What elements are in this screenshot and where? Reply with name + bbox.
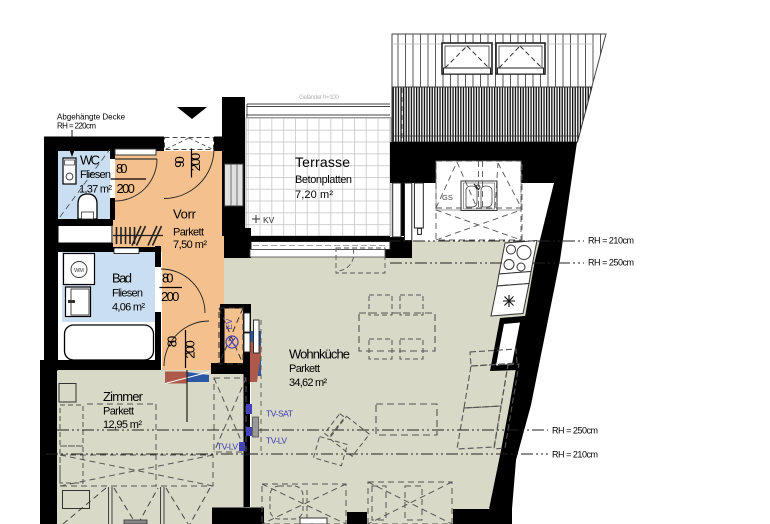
svg-text:34,62 m²: 34,62 m² <box>289 377 327 389</box>
svg-text:WM: WM <box>74 268 84 274</box>
svg-text:4,06 m²: 4,06 m² <box>112 302 145 314</box>
svg-text:1,37 m²: 1,37 m² <box>79 184 112 196</box>
svg-text:12,95 m²: 12,95 m² <box>103 419 142 431</box>
svg-text:GS: GS <box>442 193 453 202</box>
svg-text:Abgehängte Decke: Abgehängte Decke <box>57 113 126 122</box>
svg-text:Parkett: Parkett <box>103 406 134 418</box>
svg-text:Terrasse: Terrasse <box>295 154 350 170</box>
svg-text:TV-SAT: TV-SAT <box>266 409 293 419</box>
svg-text:RH = 250cm: RH = 250cm <box>552 426 598 436</box>
svg-text:Fliesen: Fliesen <box>112 288 143 300</box>
svg-text:200: 200 <box>161 289 179 304</box>
svg-text:TV-LV: TV-LV <box>217 442 238 452</box>
svg-text:RH = 210cm: RH = 210cm <box>588 236 634 246</box>
svg-text:Wohnküche: Wohnküche <box>289 346 350 361</box>
svg-text:80: 80 <box>165 336 180 348</box>
svg-text:7,20 m²: 7,20 m² <box>295 189 333 201</box>
svg-text:Zimmer: Zimmer <box>103 389 144 404</box>
svg-text:200: 200 <box>183 340 198 358</box>
svg-text:200: 200 <box>117 181 135 196</box>
svg-text:Vorr: Vorr <box>173 207 197 222</box>
svg-text:200: 200 <box>188 153 203 171</box>
svg-text:90: 90 <box>172 156 187 168</box>
svg-text:80: 80 <box>162 271 174 286</box>
svg-text:80: 80 <box>116 161 128 176</box>
svg-text:WC: WC <box>80 153 100 168</box>
svg-text:TV-LV: TV-LV <box>266 436 287 446</box>
svg-text:RH = 210cm: RH = 210cm <box>552 450 598 460</box>
svg-text:Geländer h=100: Geländer h=100 <box>299 94 339 101</box>
svg-text:Parkett: Parkett <box>173 227 204 239</box>
svg-text:RH = 250cm: RH = 250cm <box>588 258 634 268</box>
svg-text:KV: KV <box>263 215 275 225</box>
svg-text:Betonplatten: Betonplatten <box>295 174 352 186</box>
svg-text:Bad: Bad <box>112 271 132 286</box>
svg-text:EV: EV <box>225 318 234 329</box>
svg-text:RH = 220cm: RH = 220cm <box>57 122 96 131</box>
svg-text:7,50 m²: 7,50 m² <box>173 239 207 251</box>
svg-text:Fliesen: Fliesen <box>80 169 111 181</box>
svg-text:Parkett: Parkett <box>289 363 320 375</box>
